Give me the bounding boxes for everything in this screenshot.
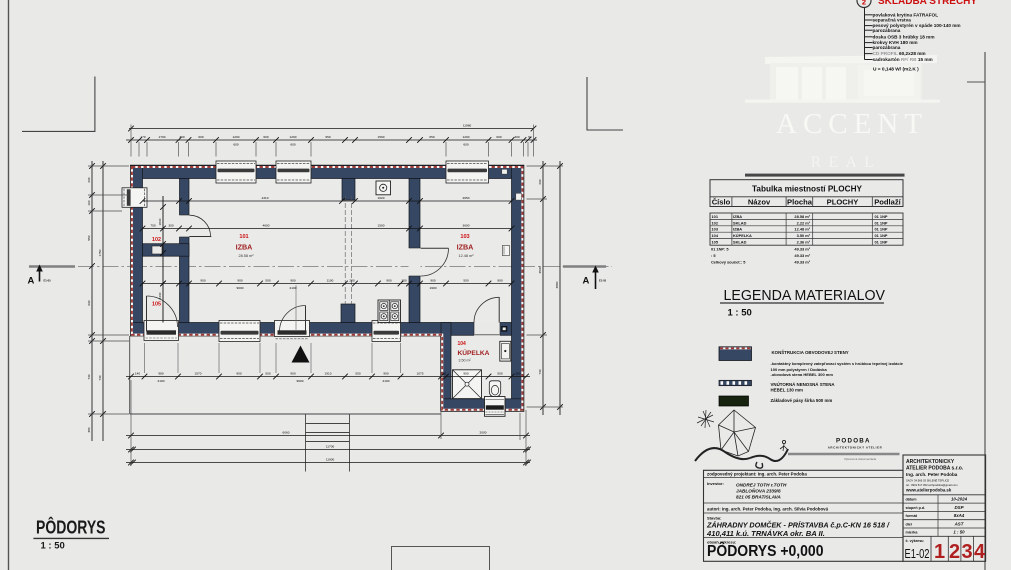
svg-text:PÔDORYS +0,000: PÔDORYS +0,000: [707, 542, 824, 560]
svg-text:11900: 11900: [326, 458, 335, 462]
svg-text:900: 900: [290, 372, 295, 376]
svg-text:103: 103: [460, 234, 469, 240]
svg-text:ARCHITEKTONICKY: ARCHITEKTONICKY: [906, 459, 955, 465]
svg-text:3530: 3530: [538, 266, 542, 273]
svg-text:1 : 50: 1 : 50: [728, 308, 752, 319]
svg-text:750: 750: [150, 224, 155, 228]
svg-text:autori: Ing. arch. Peter P: autori: Ing. arch. Peter Podoba, ing. ar…: [707, 507, 829, 512]
svg-text:01 1NP: 01 1NP: [875, 240, 888, 245]
svg-text:410,411 k.ú. TRNÁVKA okr. BA: 410,411 k.ú. TRNÁVKA okr. BA II.: [706, 529, 825, 538]
svg-text:01 1NP: 01 1NP: [875, 227, 888, 232]
svg-text:10-2024: 10-2024: [951, 497, 968, 502]
svg-text:parozábrana: parozábrana: [873, 45, 901, 50]
svg-text:1910: 1910: [325, 372, 332, 376]
svg-text:-obvodová stena HEBEL 300 mm: -obvodová stena HEBEL 300 mm: [771, 372, 834, 377]
svg-text:01 1NP: 01 1NP: [875, 233, 888, 238]
svg-text:900: 900: [236, 372, 241, 376]
svg-text:SKLADBA STRECHY: SKLADBA STRECHY: [878, 0, 977, 7]
svg-text:900: 900: [290, 279, 295, 283]
svg-text:500: 500: [265, 372, 270, 376]
svg-text:28.58 m²: 28.58 m²: [239, 254, 255, 258]
svg-text:730: 730: [538, 369, 542, 374]
svg-text:CD PROFIL 60,2x28 mm: CD PROFIL 60,2x28 mm: [873, 51, 926, 56]
svg-text:900: 900: [463, 372, 468, 376]
svg-text:104: 104: [458, 341, 467, 347]
svg-text:1075: 1075: [417, 372, 424, 376]
svg-text:Plocha: Plocha: [787, 197, 813, 206]
svg-text:290: 290: [87, 177, 91, 182]
svg-text:doska OSB 3 hrúbky 18 mm: doska OSB 3 hrúbky 18 mm: [873, 34, 935, 39]
svg-text:103: 103: [712, 227, 719, 232]
svg-text:821 05 BRATISLAVA: 821 05 BRATISLAVA: [736, 495, 781, 500]
svg-text:SKLAD: SKLAD: [733, 220, 747, 225]
svg-text:2.36 m²: 2.36 m²: [797, 240, 811, 245]
svg-text:980: 980: [158, 372, 163, 376]
svg-text:2: 2: [949, 541, 960, 563]
svg-text:1700: 1700: [159, 135, 166, 139]
svg-text:290: 290: [538, 179, 542, 184]
svg-text:KONŠTRUKCIA OBVODOVEJ STENY: KONŠTRUKCIA OBVODOVEJ STENY: [772, 350, 849, 355]
svg-text:600: 600: [496, 135, 501, 139]
svg-text:102: 102: [152, 237, 161, 243]
svg-text:E1-02: E1-02: [905, 547, 930, 561]
svg-text:3880: 3880: [555, 281, 559, 288]
svg-text:1840: 1840: [158, 218, 162, 225]
svg-text:stupeň p.d.: stupeň p.d.: [906, 506, 926, 510]
svg-text:104: 104: [712, 233, 719, 238]
svg-text:separačná vrstva: separačná vrstva: [873, 18, 912, 23]
svg-text:PLOCHY: PLOCHY: [827, 197, 859, 206]
svg-text:KÚPELKA: KÚPELKA: [733, 233, 752, 238]
svg-text:ARCHITEKTONICKÝ ATELIER: ARCHITEKTONICKÝ ATELIER: [828, 445, 883, 450]
svg-text:300: 300: [514, 135, 519, 139]
svg-text:ACCENT: ACCENT: [776, 108, 928, 140]
svg-text:1570: 1570: [195, 372, 202, 376]
svg-text:4: 4: [974, 541, 986, 563]
svg-text:600: 600: [233, 142, 238, 146]
svg-text:01 1NP: 01 1NP: [875, 220, 888, 225]
svg-text:600: 600: [463, 142, 468, 146]
svg-text:1: 1: [934, 541, 945, 563]
svg-text:160: 160: [87, 200, 91, 205]
svg-text:Tabulka miestností PLOCHY: Tabulka miestností PLOCHY: [752, 184, 862, 193]
svg-text:1900: 1900: [430, 286, 437, 290]
svg-text:2000: 2000: [480, 431, 487, 435]
svg-text:3.50 m²: 3.50 m²: [459, 359, 472, 363]
svg-text:JABLOŇOVA 2339/6: JABLOŇOVA 2339/6: [736, 487, 781, 494]
svg-text:200: 200: [515, 372, 520, 376]
svg-text:VNÚTORNÁ NENOSNÁ STENA: VNÚTORNÁ NENOSNÁ STENA: [771, 382, 836, 387]
svg-text:9600: 9600: [297, 379, 304, 383]
svg-text:730: 730: [87, 374, 91, 379]
svg-text:650: 650: [429, 135, 434, 139]
svg-text:140: 140: [135, 372, 140, 376]
svg-text:380: 380: [87, 427, 91, 432]
svg-text:600: 600: [198, 135, 203, 139]
svg-text:KÚPELKA: KÚPELKA: [458, 348, 490, 357]
svg-text:IZBA: IZBA: [733, 214, 742, 219]
svg-text:E1-05: E1-05: [599, 279, 607, 283]
svg-text:2.22 m²: 2.22 m²: [797, 220, 811, 225]
svg-text:8xA4: 8xA4: [954, 513, 965, 518]
svg-text:sadrokartón RF/ RB 15 mm: sadrokartón RF/ RB 15 mm: [873, 57, 933, 62]
svg-text:1500: 1500: [378, 135, 385, 139]
svg-text:200: 200: [349, 279, 354, 283]
svg-text:900: 900: [237, 279, 242, 283]
svg-text:diel: diel: [906, 522, 912, 526]
svg-text:www.atelierpodoba.sk: www.atelierpodoba.sk: [905, 488, 952, 493]
svg-text:1100: 1100: [327, 279, 334, 283]
svg-text:DSP: DSP: [954, 505, 963, 510]
svg-text:IZBA: IZBA: [457, 243, 474, 252]
svg-text:č. výkresu: č. výkresu: [906, 539, 925, 543]
svg-text:49.33 m²: 49.33 m²: [794, 253, 810, 258]
svg-text:formát: formát: [906, 514, 918, 518]
svg-text:zodpovedný projektant: Ing.: zodpovedný projektant: Ing. arch. Peter …: [707, 471, 807, 476]
svg-text:28.58 m²: 28.58 m²: [794, 214, 810, 219]
svg-text:Celkový součet:: 5: Celkový součet:: 5: [711, 260, 746, 265]
svg-text:U = 0,148 W/ (m2.K ): U = 0,148 W/ (m2.K ): [873, 67, 919, 73]
svg-text:11700: 11700: [326, 445, 335, 449]
svg-text:Podlaží: Podlaží: [874, 197, 901, 206]
svg-text:101: 101: [239, 234, 248, 240]
svg-text:105: 105: [152, 302, 161, 308]
svg-text:300: 300: [168, 224, 173, 228]
svg-text:3: 3: [961, 541, 972, 563]
svg-text:900: 900: [386, 279, 391, 283]
svg-text:-kontaktný komplexný zatepľova: -kontaktný komplexný zatepľovací systém …: [771, 361, 904, 366]
svg-text:600: 600: [290, 142, 295, 146]
svg-text:900: 900: [383, 372, 388, 376]
svg-text:ONDREJ TOTH r.TOTH: ONDREJ TOTH r.TOTH: [736, 483, 787, 488]
svg-text:2: 2: [862, 0, 866, 7]
svg-text:1200: 1200: [463, 135, 470, 139]
svg-text:PÔDORYS: PÔDORYS: [36, 516, 106, 537]
svg-text:IZBA: IZBA: [236, 243, 253, 252]
svg-text:2430: 2430: [158, 292, 162, 299]
svg-text:550: 550: [87, 235, 91, 240]
svg-text:900: 900: [430, 279, 435, 283]
svg-text:PODOBA: PODOBA: [836, 438, 871, 445]
svg-text:1620: 1620: [378, 196, 385, 200]
svg-text:2100: 2100: [383, 379, 390, 383]
svg-text:dátum: dátum: [906, 498, 918, 502]
svg-text:11980: 11980: [463, 124, 472, 128]
svg-text:parozábrana: parozábrana: [873, 28, 901, 33]
svg-text:Názov: Názov: [748, 197, 771, 206]
svg-text:105: 105: [712, 240, 719, 245]
svg-text:ATELIER PODOBA s.r.o.: ATELIER PODOBA s.r.o.: [906, 466, 964, 472]
svg-text:Výkresová dokumentácia: Výkresová dokumentácia: [844, 457, 877, 461]
svg-text:550: 550: [355, 372, 360, 376]
svg-text:102: 102: [712, 220, 719, 225]
svg-text:Číslo: Číslo: [712, 197, 731, 206]
svg-text:600: 600: [263, 135, 268, 139]
svg-text:101: 101: [712, 214, 719, 219]
svg-text:Ing. arch. Peter Podoba: Ing. arch. Peter Podoba: [906, 472, 958, 477]
svg-text:3.50 m²: 3.50 m²: [797, 233, 811, 238]
svg-text:AST: AST: [954, 521, 964, 526]
svg-text:500: 500: [497, 372, 502, 376]
svg-text:1750: 1750: [98, 249, 102, 256]
svg-text:500: 500: [463, 279, 468, 283]
svg-text:1500: 1500: [378, 224, 385, 228]
svg-text:12.48 m²: 12.48 m²: [459, 254, 475, 258]
svg-text:9600: 9600: [237, 286, 244, 290]
svg-text:01 1NP: 5: 01 1NP: 5: [711, 247, 729, 252]
svg-text:Základové pásy šírka 500 mm: Základové pásy šírka 500 mm: [771, 398, 833, 403]
svg-text:4600: 4600: [263, 224, 270, 228]
svg-text:1 : 50: 1 : 50: [41, 541, 65, 552]
svg-text:tel.: 0919 517 093 archpodoba: tel.: 0919 517 093 archpodoba@gmail.com: [906, 483, 958, 487]
svg-text:49.33 m²: 49.33 m²: [794, 260, 810, 265]
svg-text:50: 50: [528, 135, 532, 139]
svg-text:Investor:: Investor:: [707, 481, 724, 486]
svg-text:2100: 2100: [290, 286, 297, 290]
svg-text:A: A: [28, 276, 35, 287]
svg-text:49.33 m²: 49.33 m²: [794, 247, 810, 252]
svg-text:900: 900: [200, 279, 205, 283]
svg-text:690: 690: [87, 300, 91, 305]
svg-text:1200: 1200: [233, 135, 240, 139]
svg-text:950: 950: [325, 135, 330, 139]
svg-text:01 1NP: 01 1NP: [875, 214, 888, 219]
svg-text:4310: 4310: [262, 196, 269, 200]
svg-text:2100: 2100: [158, 379, 165, 383]
svg-text:500: 500: [265, 279, 270, 283]
svg-text:3600: 3600: [463, 224, 470, 228]
svg-text:IZBA: IZBA: [733, 227, 742, 232]
svg-text:170: 170: [140, 135, 145, 139]
svg-text:12.48 m²: 12.48 m²: [794, 227, 810, 232]
svg-text:150: 150: [401, 279, 406, 283]
svg-text:900: 900: [497, 279, 502, 283]
svg-text:2650: 2650: [463, 196, 470, 200]
svg-text:E1-05: E1-05: [44, 279, 52, 283]
svg-text:HEBEL 130 mm: HEBEL 130 mm: [771, 388, 803, 393]
svg-text:REAL: REAL: [811, 154, 881, 171]
svg-text:LEGENDA MATERIALOV: LEGENDA MATERIALOV: [724, 288, 886, 304]
svg-text:A: A: [583, 276, 590, 287]
svg-text:mierka: mierka: [906, 531, 919, 535]
svg-text:730: 730: [98, 375, 102, 380]
svg-text:6060: 6060: [283, 431, 290, 435]
svg-text:300: 300: [179, 135, 184, 139]
svg-text:1 : 50: 1 : 50: [953, 530, 965, 535]
svg-text:SKLAD: SKLAD: [733, 240, 747, 245]
svg-text:150: 150: [441, 372, 446, 376]
svg-text:1200: 1200: [290, 135, 297, 139]
